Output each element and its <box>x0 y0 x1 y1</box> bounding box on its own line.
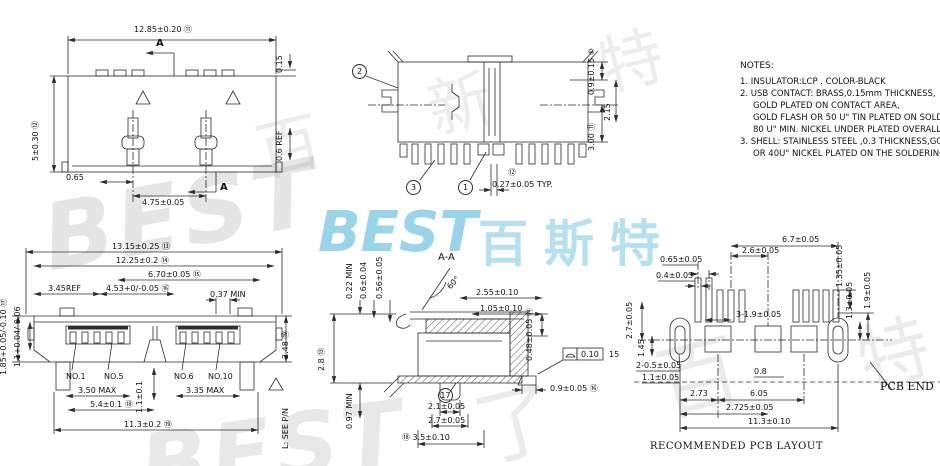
dim-shell-width: 12.25±0.2 ⑭ <box>116 256 169 265</box>
dim-605: 6.05 <box>750 389 768 398</box>
dim-28: 2.8 ⑬ <box>317 348 326 371</box>
top-view-drawing <box>38 24 310 212</box>
top-view: 12.85±0.20 ⑪ A 0.15 0.6 REF 5±0.30 ⑫ 0.6… <box>38 24 310 212</box>
dim-shell-top: 0.9±0.15 ⑩ <box>587 48 596 95</box>
dim-06: 0.6±0.04 <box>359 262 368 299</box>
dim-113: 11.3±0.2 ⑲ <box>124 420 172 429</box>
pin-label-no5: NO.5 <box>104 372 124 381</box>
front-view: 13.15±0.25 ⑬ 12.25±0.2 ⑭ 6.70±0.05 ⑮ 3.4… <box>8 242 306 454</box>
engineering-drawing-page: BEST 百 新 特 BEST 了 百 特 BEST 百斯特 <box>0 0 940 466</box>
dim-08: 0.8 <box>754 367 767 376</box>
pcb-layout-drawing <box>634 234 940 460</box>
bottom-view: 2 3 1 0.9±0.15 ⑩ 2.15 3.00 ⑪ ⑫ 0.27±0.05… <box>340 46 645 216</box>
note-line: 1. INSULATOR:LCP . COLOR-BLACK <box>740 76 940 88</box>
length-note: L: SEE P/N <box>281 408 290 449</box>
note-line: 2. USB CONTACT: BRASS,0.15mm THICKNESS, <box>740 88 940 100</box>
balloon-shell: 2 <box>352 64 367 79</box>
dim-065: 0.65±0.05 <box>660 255 702 264</box>
dim-248: 2.48 ⑲ <box>281 331 290 359</box>
pin-label-no10: NO.10 <box>208 372 233 381</box>
dim-35: ⑱ 3.5±0.10 <box>402 433 450 442</box>
dim-67: 6.7±0.05 <box>782 235 819 244</box>
dim-depth: 5±0.30 ⑫ <box>31 121 40 161</box>
fcf-note: 15 <box>609 350 619 359</box>
dim-145: 1.45 <box>637 339 646 357</box>
section-title: A-A <box>438 252 455 263</box>
pcb-layout-caption: RECOMMENDED PCB LAYOUT <box>650 442 823 451</box>
dim-037: 0.37 MIN <box>210 290 246 299</box>
dim-peg-pitch: 4.75±0.05 <box>142 198 184 207</box>
dim-27: 2.7±0.05 <box>428 416 465 425</box>
dim-2725: 2.725±0.05 <box>726 403 773 412</box>
balloon-insulator: 1 <box>458 180 473 195</box>
dim-350-max: 3.50 MAX <box>78 386 116 395</box>
pin-label-no1: NO.1 <box>66 372 86 381</box>
dim-pin-pitch: 0.27±0.05 TYP. <box>492 180 553 189</box>
section-label-a-top: A <box>156 38 164 49</box>
dim-453: 4.53+0/-0.05 ⑯ <box>106 284 170 293</box>
dim-255: 2.55±0.10 <box>476 288 518 297</box>
pcb-end-label: PCB END <box>880 382 934 391</box>
dim-105: 1.05±0.10 <box>480 304 522 313</box>
dim-opening: 1.1+0.04/-0.06 <box>13 306 22 367</box>
dim-height: 1.85+0.05/-0.10 ⑰ <box>0 299 8 375</box>
dim-pads: 3-1.9±0.05 <box>736 310 781 319</box>
mounting-pegs <box>122 110 217 202</box>
dim-mid: 2.15 <box>603 103 612 121</box>
dim-center-rib: 1.1±0.1 <box>135 381 144 413</box>
notes-title: NOTES: <box>740 60 940 72</box>
dim-273: 2.73 <box>690 389 708 398</box>
dim-holes: 2-0.5±0.05 <box>636 361 681 370</box>
pin-label-no6: NO.6 <box>174 372 194 381</box>
dim-097-min: 0.97 MIN <box>345 393 354 429</box>
dim-09: 0.9±0.05 ⑯ <box>550 384 598 393</box>
dim-54: 5.4±0.1 ⑱ <box>90 400 133 409</box>
caution-triangle-icon <box>136 91 150 104</box>
shell-outline <box>368 51 618 142</box>
connector-body-outline <box>62 70 282 172</box>
dim-113-pcb: 11.3±0.10 <box>748 417 790 426</box>
balloon-contact: 3 <box>406 180 421 195</box>
dim-21: 2.1±0.05 <box>428 402 465 411</box>
dim-26: 2.6±0.05 <box>742 246 779 255</box>
dim-056: 0.56±0.05 <box>375 257 384 299</box>
note-line: 80 U" MIN. NICKEL UNDER PLATED OVERALL. <box>740 124 940 136</box>
dim-shell-ref: 0.6 REF <box>275 131 284 161</box>
solder-tails <box>400 144 586 164</box>
balloon-17: 17 <box>438 388 453 403</box>
dim-top-width: 12.85±0.20 ⑪ <box>134 25 192 34</box>
dim-135: 1.35±0.05 <box>835 245 844 287</box>
pin-dim-id: ⑫ <box>508 168 516 177</box>
caution-triangle-icon <box>226 91 240 104</box>
dim-27-left: 2.7±0.05 <box>625 302 634 339</box>
dim-048: 0.48±0.05 ⑭ <box>525 308 534 361</box>
caution-triangle-icon <box>269 378 283 390</box>
section-label-a-bottom: A <box>220 182 228 193</box>
dim-13: 1.3±0.05 <box>845 282 854 319</box>
dim-tab-height: 0.15 <box>275 55 284 73</box>
section-dimension-lines <box>330 268 603 448</box>
dim-peg-offset: 0.65 <box>66 173 84 182</box>
notes-block: NOTES: 1. INSULATOR:LCP . COLOR-BLACK 2.… <box>740 60 940 160</box>
note-line: GOLD PLATED ON CONTACT AREA, <box>740 100 940 112</box>
dim-11: 1.1±0.05 <box>642 373 679 382</box>
dim-overall-width: 13.15±0.25 ⑬ <box>112 242 170 251</box>
section-view: A-A 0.22 MIN 0.6±0.04 0.56±0.05 2.8 ⑬ 0.… <box>326 252 626 454</box>
profile-of-surface-icon <box>566 354 575 357</box>
dim-19: 1.9±0.05 <box>863 272 872 309</box>
section-cut-markers <box>146 53 216 192</box>
section-body <box>384 312 536 400</box>
note-line: GOLD FLASH OR 50 U" TIN PLATED ON SOLDER… <box>740 112 940 124</box>
dim-ref: 3.45REF <box>48 284 81 293</box>
dim-total: 3.00 ⑪ <box>587 123 596 151</box>
dim-04: 0.4±0.03 <box>656 271 693 280</box>
pcb-layout-view: 6.7±0.05 2.6±0.05 0.65±0.05 0.4±0.03 1.3… <box>634 234 940 460</box>
note-line: OR 40U" NICKEL PLATED ON THE SOLDERING T… <box>740 148 940 160</box>
note-line: 3. SHELL: STAINLESS STEEL ,0.3 THICKNESS… <box>740 136 940 148</box>
fcf-tolerance: 0.10 <box>581 350 599 359</box>
dim-022-min: 0.22 MIN <box>345 263 354 299</box>
dim-335-max: 3.35 MAX <box>186 386 224 395</box>
dim-670: 6.70±0.05 ⑮ <box>148 270 201 279</box>
bottom-view-drawing <box>340 46 645 216</box>
